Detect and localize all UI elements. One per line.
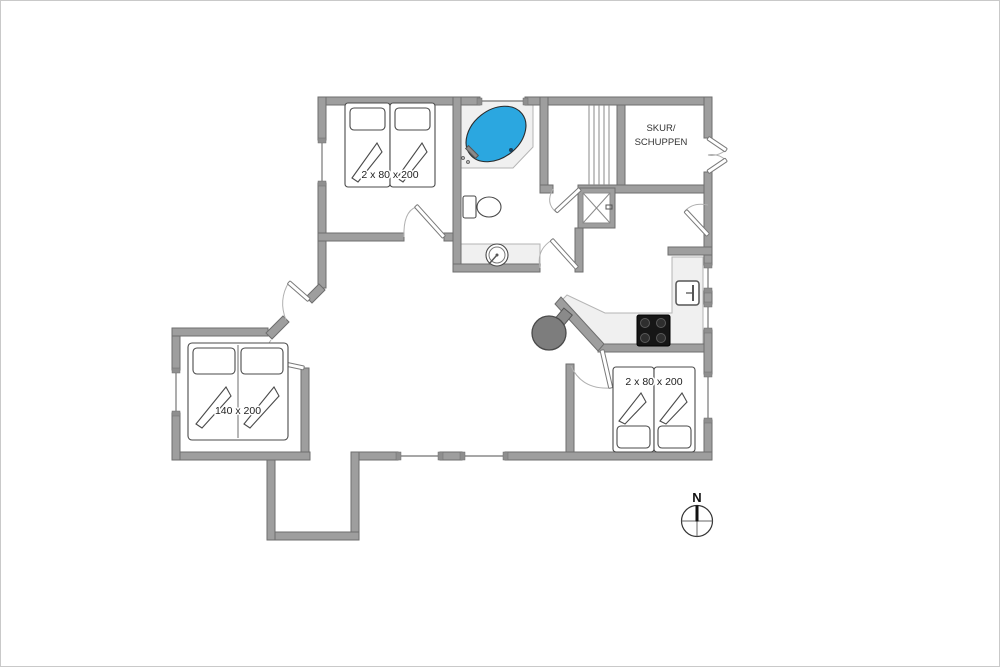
- fridge: [676, 281, 699, 305]
- bed-top-left: 2 x 80 x 200: [345, 103, 435, 187]
- pillow: [350, 108, 385, 130]
- compass-needle: [696, 506, 699, 522]
- sauna-slats: [589, 105, 609, 185]
- wood-stove: [532, 316, 566, 350]
- bath-drain: [509, 148, 513, 152]
- floor-plan: 2 x 80 x 200 140 x 200 2 x 80 x 200: [0, 0, 1000, 667]
- bed-size-label: 2 x 80 x 200: [361, 169, 418, 181]
- compass-north-label: N: [692, 490, 701, 505]
- toilet: [463, 196, 501, 218]
- pillow: [241, 348, 283, 374]
- bed-left: 140 x 200: [188, 343, 288, 440]
- pillow: [395, 108, 430, 130]
- floor-plan-page: 2 x 80 x 200 140 x 200 2 x 80 x 200: [0, 0, 1000, 667]
- bed-size-label: 140 x 200: [215, 405, 261, 417]
- shed-label-line2: SCHUPPEN: [635, 137, 688, 148]
- bed-size-label: 2 x 80 x 200: [625, 376, 682, 388]
- compass-rose: N: [682, 490, 713, 537]
- bed-right: 2 x 80 x 200: [613, 367, 695, 452]
- round-sink: [486, 244, 508, 266]
- pillow: [193, 348, 235, 374]
- shed-label-line1: SKUR/: [646, 123, 675, 134]
- pillow: [617, 426, 650, 448]
- shed-label: SKUR/ SCHUPPEN: [635, 123, 688, 148]
- pillow: [658, 426, 691, 448]
- shower-cabin: [578, 188, 615, 228]
